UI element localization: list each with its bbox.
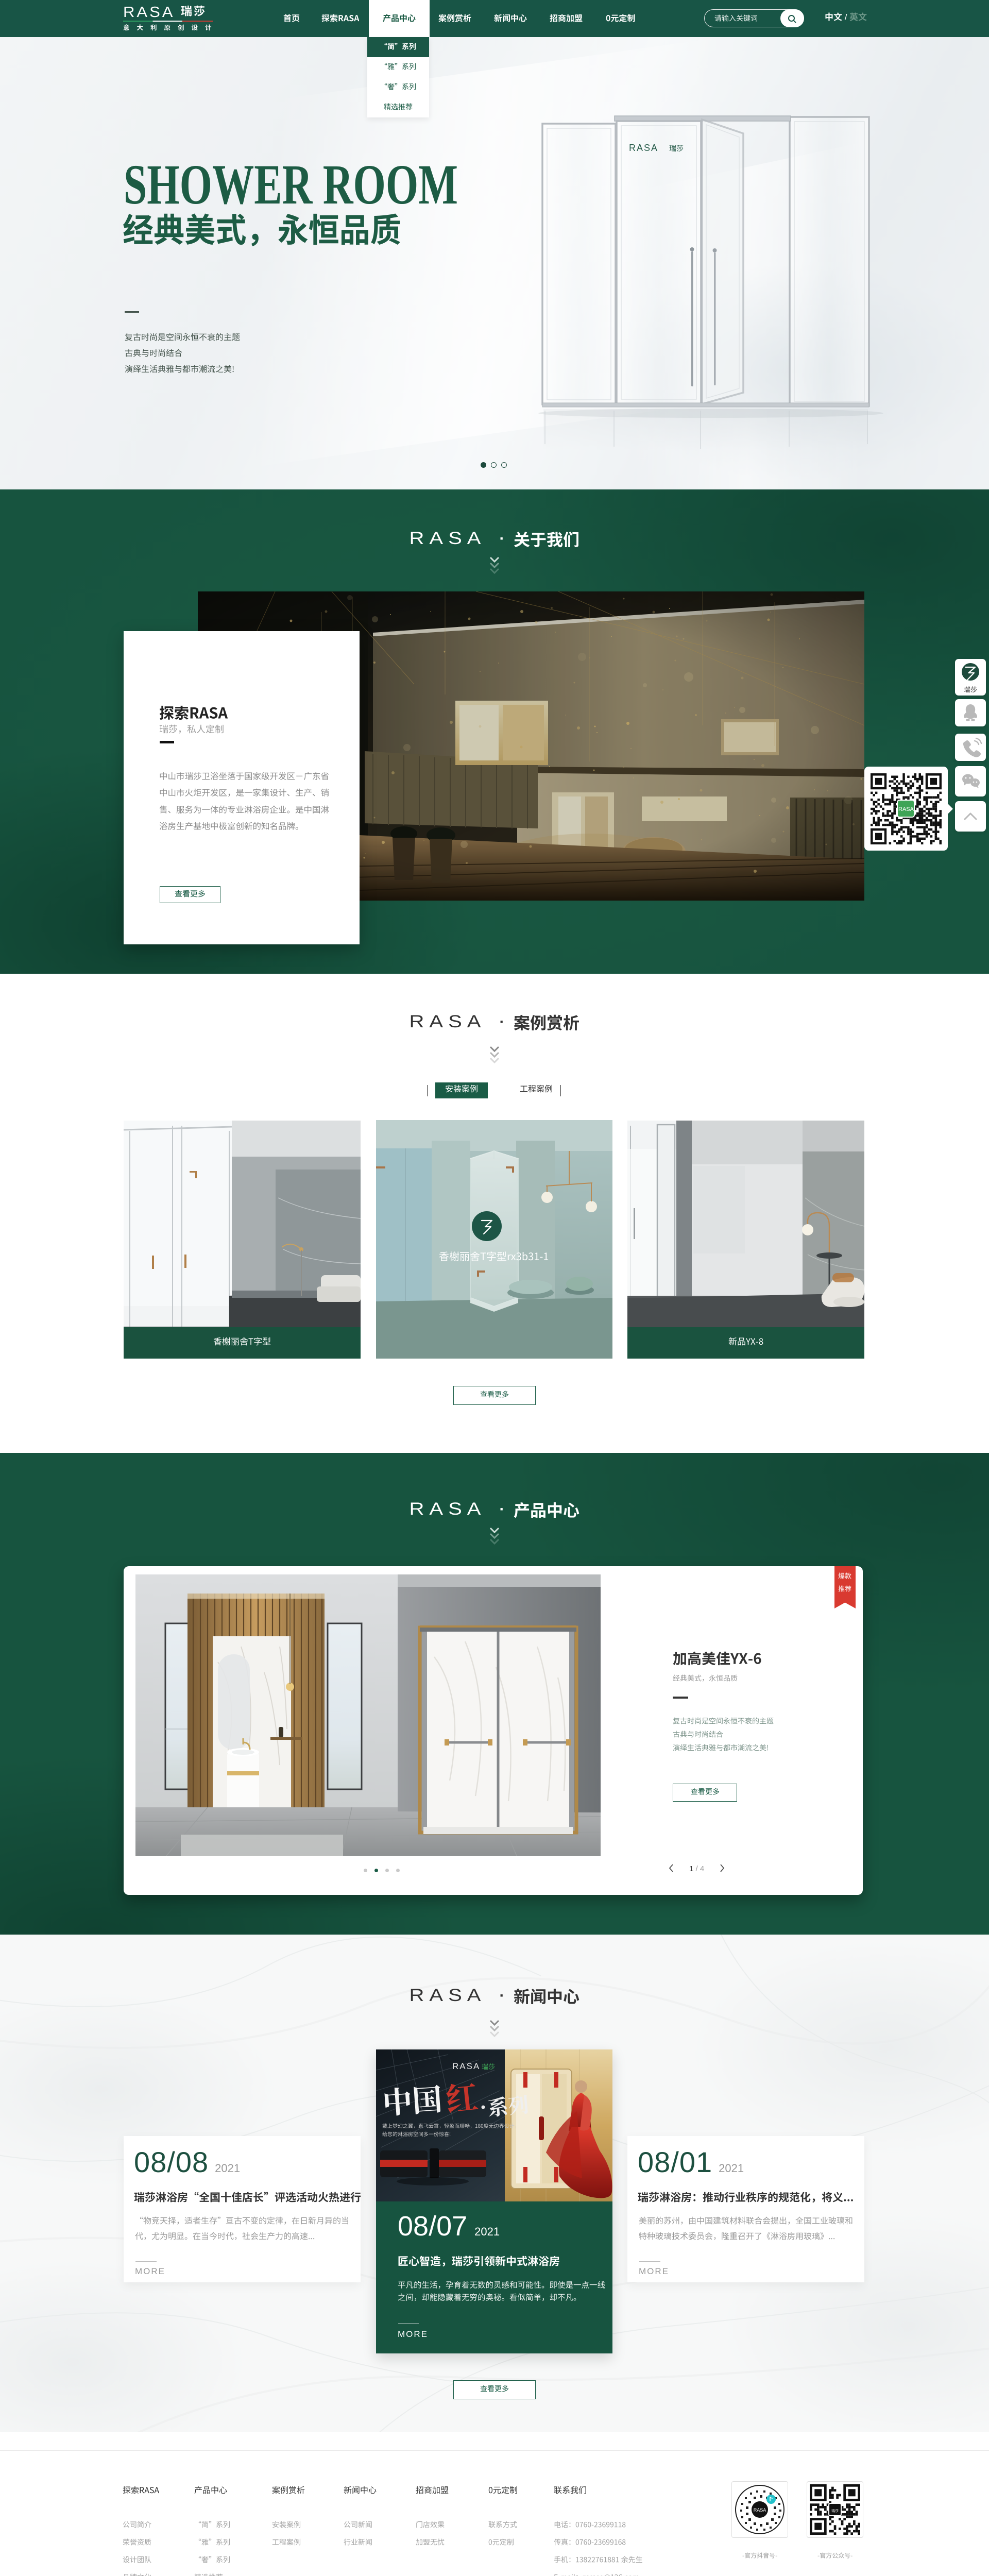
svg-text:RASA: RASA [754,2507,766,2513]
svg-text:RASA: RASA [629,143,658,153]
svg-text:RASA: RASA [452,2061,480,2071]
svg-text:RASA: RASA [898,806,914,812]
